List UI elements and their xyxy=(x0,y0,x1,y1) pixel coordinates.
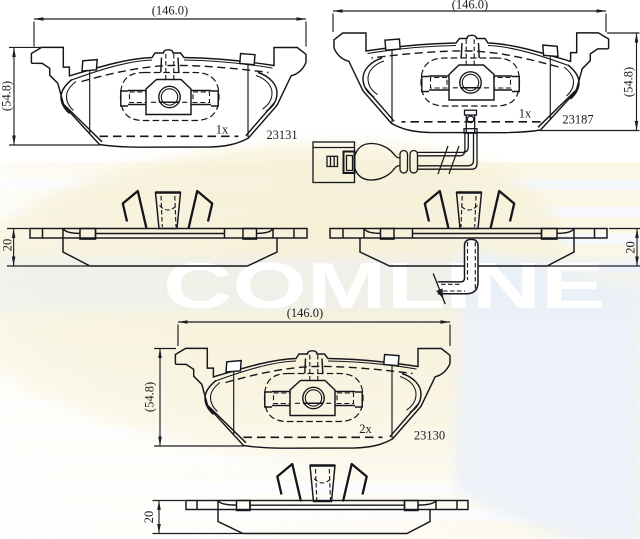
svg-text:(54.8): (54.8) xyxy=(0,81,14,111)
svg-text:COMLINE: COMLINE xyxy=(163,249,605,322)
svg-text:20: 20 xyxy=(142,511,156,524)
svg-text:1x: 1x xyxy=(216,123,229,137)
svg-text:23130: 23130 xyxy=(414,429,445,443)
svg-text:(146.0): (146.0) xyxy=(287,306,323,320)
svg-text:20: 20 xyxy=(624,241,638,254)
svg-text:(146.0): (146.0) xyxy=(152,4,188,18)
svg-text:23131: 23131 xyxy=(266,128,297,142)
svg-text:23187: 23187 xyxy=(562,113,593,127)
svg-text:(146.0): (146.0) xyxy=(452,0,488,12)
svg-text:2x: 2x xyxy=(359,422,372,436)
svg-text:(54.8): (54.8) xyxy=(622,67,636,97)
svg-text:1x: 1x xyxy=(519,107,532,121)
svg-text:20: 20 xyxy=(1,239,15,252)
svg-text:(54.8): (54.8) xyxy=(143,382,157,412)
